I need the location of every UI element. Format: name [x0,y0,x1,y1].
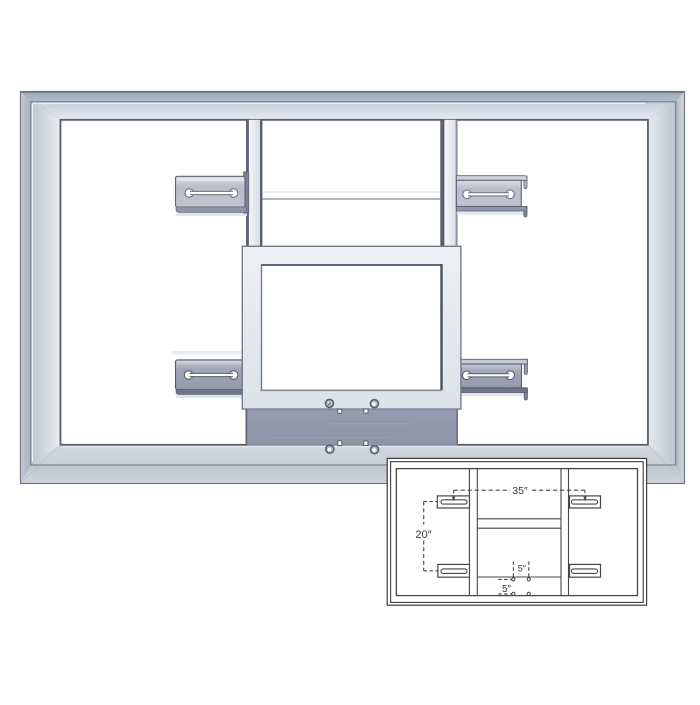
svg-text:5″: 5″ [518,564,527,574]
svg-text:35″: 35″ [512,485,528,497]
svg-text:5″: 5″ [502,584,512,595]
svg-text:20″: 20″ [415,529,431,541]
